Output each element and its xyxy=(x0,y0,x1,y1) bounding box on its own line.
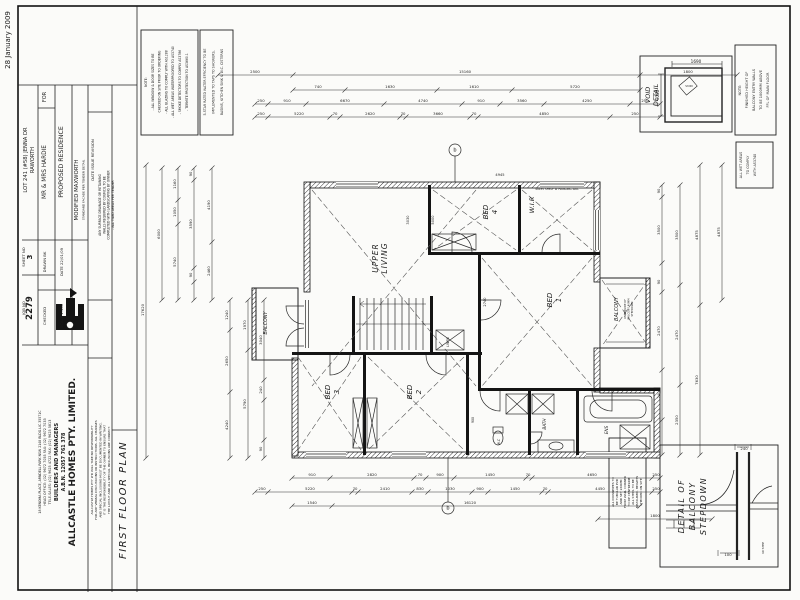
dim-chain: 19705790 xyxy=(242,298,250,461)
stepdown-dim-100: 100 xyxy=(724,552,732,557)
wet-area-note: ALL WET AREASTO COMPLYWITH AS3740 xyxy=(739,152,757,178)
svg-text:740: 740 xyxy=(314,84,322,89)
company-tel: TELE-SALES: (02) 9625 4722 FAX: (02) 962… xyxy=(48,420,52,506)
svg-text:90: 90 xyxy=(656,188,661,193)
svg-text:5720: 5720 xyxy=(570,84,580,89)
svg-text:2500: 2500 xyxy=(250,69,260,74)
svg-text:2620: 2620 xyxy=(365,111,375,116)
room-upper-living: UPPERLIVING xyxy=(371,242,389,273)
five-star-note: 5-STAR RATED WATER EFFICIENCY TO BEIMPLE… xyxy=(203,48,224,115)
room-wir: W.I.R xyxy=(528,197,536,213)
svg-text:4875: 4875 xyxy=(694,230,699,240)
svg-text:1450: 1450 xyxy=(485,472,495,477)
svg-text:5790: 5790 xyxy=(242,399,247,409)
inner-dim-4945: 4945 xyxy=(495,173,504,177)
company-address: 18 KENOMA PLACE, ARNDELL PARK NSW 2148 B… xyxy=(38,410,42,514)
svg-text:240: 240 xyxy=(258,386,263,394)
interior-walls xyxy=(292,185,660,455)
svg-text:3660: 3660 xyxy=(433,111,443,116)
svg-text:3500: 3500 xyxy=(674,230,679,240)
room-bed3: BED3 xyxy=(324,384,341,399)
svg-text:4875: 4875 xyxy=(716,227,721,237)
sheet-frame xyxy=(18,6,790,590)
svg-text:900: 900 xyxy=(436,472,444,477)
svg-text:250: 250 xyxy=(652,486,660,491)
svg-text:250: 250 xyxy=(257,111,265,116)
dim-chain: 2509106670474091035604250250 xyxy=(253,98,663,106)
svg-text:4850: 4850 xyxy=(539,111,549,116)
svg-text:70: 70 xyxy=(526,472,531,477)
svg-text:70: 70 xyxy=(353,486,358,491)
svg-text:2350: 2350 xyxy=(674,415,679,425)
stepdown-dim-240: 240 xyxy=(740,446,748,451)
dim-chain: 9102820709001450704650250 xyxy=(290,472,663,480)
svg-text:6670: 6670 xyxy=(340,98,350,103)
stairs xyxy=(356,298,430,350)
dim-chain: 154016120 xyxy=(290,500,643,508)
lot-block: LOT 241 (#58) JENNA DRRAWORTH xyxy=(23,127,36,193)
svg-text:240: 240 xyxy=(656,391,661,399)
void-tag: VOID xyxy=(685,84,693,88)
marker-bottom: b xyxy=(446,506,449,512)
svg-text:2470: 2470 xyxy=(656,326,661,336)
stepdown-dim-step: 40 STEP xyxy=(761,542,765,554)
room-bath: BATH xyxy=(542,418,547,430)
svg-text:5220: 5220 xyxy=(305,486,315,491)
svg-text:1630: 1630 xyxy=(385,84,395,89)
svg-text:4450: 4450 xyxy=(595,486,605,491)
fixtures xyxy=(353,234,652,452)
svg-text:2460: 2460 xyxy=(206,266,211,276)
svg-text:1450: 1450 xyxy=(510,486,520,491)
svg-text:1800: 1800 xyxy=(650,513,660,518)
side-date: 28 January 2009 xyxy=(4,11,12,69)
checked: CHECKED xyxy=(42,307,47,325)
dim-chain: 6000 xyxy=(156,166,164,303)
balcony-wall-note: NOTE:FINISHED HEIGHT OFBALCONY ENTRY WAL… xyxy=(738,68,770,111)
downpipe-steel-note: ALL DOWNPIPES TOBE TUBULAR PVDAND SET 24… xyxy=(611,476,643,508)
inner-dim-2740: 2740 xyxy=(483,297,487,307)
svg-text:2410: 2410 xyxy=(380,486,390,491)
svg-text:910: 910 xyxy=(308,472,316,477)
dim-chain: 2505220702620703660704850250 xyxy=(253,111,663,119)
revision-header: DATE ISSUE REVISION xyxy=(90,139,95,181)
svg-text:250: 250 xyxy=(257,98,265,103)
svg-text:17620: 17620 xyxy=(140,303,145,316)
room-balcony-right: BALCONY xyxy=(614,296,620,321)
svg-text:250: 250 xyxy=(652,472,660,477)
svg-text:4650: 4650 xyxy=(587,472,597,477)
disclaimer: ALLCASTLE HOMES PTY LTD WILL TAKE NO RES… xyxy=(90,420,111,520)
svg-text:16120: 16120 xyxy=(464,500,477,505)
shelf-note: 40x35 SHELF W HANGING RAIL xyxy=(535,187,579,191)
svg-text:70: 70 xyxy=(472,111,477,116)
room-bed2: BED2 xyxy=(406,384,423,399)
scale: SCALE 1:100 xyxy=(59,303,64,328)
svg-text:90: 90 xyxy=(188,272,193,277)
svg-text:2470: 2470 xyxy=(674,330,679,340)
svg-text:1240: 1240 xyxy=(224,310,229,320)
dim-chain: 4875 xyxy=(716,163,724,303)
svg-text:4740: 4740 xyxy=(418,98,428,103)
dim-chain: 350024702350 xyxy=(674,183,682,458)
svg-text:2650: 2650 xyxy=(224,356,229,366)
balconies xyxy=(252,278,650,360)
svg-text:900: 900 xyxy=(476,486,484,491)
svg-text:90: 90 xyxy=(188,171,193,176)
marker-top: b xyxy=(453,148,456,154)
company-abn: A.B.N. 12057 761 378 xyxy=(61,432,67,491)
svg-text:4240: 4240 xyxy=(224,420,229,430)
svg-text:830: 830 xyxy=(416,486,424,491)
balcony-right-note: UNDERSIDE OFBALCONY 40MMSTEPDOWN xyxy=(623,299,634,320)
void-dim-side: 1000 xyxy=(655,89,660,100)
svg-text:5220: 5220 xyxy=(294,111,304,116)
model: MODIFIED MAXWORTH xyxy=(74,160,80,221)
inner-dim-900: 900 xyxy=(471,417,475,423)
svg-text:6000: 6000 xyxy=(156,229,161,239)
svg-text:250: 250 xyxy=(258,486,266,491)
svg-text:1160: 1160 xyxy=(172,179,177,189)
svg-text:3590: 3590 xyxy=(188,219,193,229)
drawing-sheet: { "title_block": { "plan_title": "FIRST … xyxy=(0,0,800,600)
svg-text:1030: 1030 xyxy=(445,486,455,491)
drawn: DRAWN BK xyxy=(42,251,47,272)
svg-text:1050: 1050 xyxy=(172,207,177,217)
dim-chain: 116010505740 xyxy=(172,166,180,303)
dim-chain: 41902460 xyxy=(206,166,214,303)
inner-dim-5000: 5000 xyxy=(431,215,435,225)
dim-chain: 124026504240 xyxy=(224,298,232,461)
exterior-walls xyxy=(292,182,660,458)
company-head: HEAD OFFICE: (02) 9672 7055 FAX: (02) 96… xyxy=(43,418,47,505)
stepdown-detail-label: DETAIL OFBALCONYSTEPDOWN xyxy=(677,477,708,535)
svg-text:1800: 1800 xyxy=(683,69,693,74)
model-sub: STANDARD FACADE PER TENDER DETAIL xyxy=(82,159,86,220)
dim-chain: 740163016105720 xyxy=(291,84,643,92)
note-boxes xyxy=(141,30,776,548)
room-bed4: BED4 xyxy=(482,204,499,219)
job-no: 2279 xyxy=(25,296,35,320)
dim-chain: 90359090 xyxy=(188,166,196,303)
void-dim-top: 1690 xyxy=(691,59,702,64)
svg-text:1540: 1540 xyxy=(307,500,317,505)
svg-text:7630: 7630 xyxy=(694,375,699,385)
svg-text:70: 70 xyxy=(418,472,423,477)
svg-text:250: 250 xyxy=(631,111,639,116)
inner-dim-3030: 3030 xyxy=(406,215,410,225)
svg-text:90: 90 xyxy=(656,279,661,284)
for-label: FOR xyxy=(42,91,48,102)
room-ens: ENS xyxy=(604,425,609,434)
company-role: BUILDERS AND MANAGERS xyxy=(54,423,60,502)
svg-text:70: 70 xyxy=(543,486,548,491)
svg-text:3500: 3500 xyxy=(656,225,661,235)
svg-text:70: 70 xyxy=(333,111,338,116)
svg-text:4190: 4190 xyxy=(206,200,211,210)
svg-text:5740: 5740 xyxy=(172,257,177,267)
svg-text:3040: 3040 xyxy=(258,335,263,345)
plan-title: FIRST FLOOR PLAN xyxy=(118,441,129,559)
room-wc: W.C xyxy=(497,438,501,445)
company-name: ALLCASTLE HOMES PTY. LIMITED. xyxy=(68,378,78,546)
dim-chain: 250522070241083010309001450704450250 xyxy=(253,486,663,494)
dim-chain: 48757630 xyxy=(694,163,702,458)
svg-text:15160: 15160 xyxy=(459,69,472,74)
svg-text:2820: 2820 xyxy=(367,472,377,477)
section-markers xyxy=(442,144,461,514)
svg-text:910: 910 xyxy=(477,98,485,103)
svg-text:90: 90 xyxy=(258,446,263,451)
sheet-no: 3 xyxy=(26,254,34,259)
svg-text:3560: 3560 xyxy=(517,98,527,103)
svg-text:4250: 4250 xyxy=(582,98,592,103)
client: MR & MRS HARDIE xyxy=(42,145,48,199)
svg-text:70: 70 xyxy=(401,111,406,116)
general-notes: NOTE:- ALL WINDOW & DOOR SIZES TO BE CHE… xyxy=(144,46,189,118)
room-linen: LINEN xyxy=(446,337,450,347)
project: PROPOSED RESIDENCE xyxy=(58,126,65,198)
date: DATE 22/01/09 xyxy=(59,247,64,276)
dim-chain: 17620 xyxy=(140,163,148,461)
svg-text:1970: 1970 xyxy=(242,320,247,330)
svg-text:910: 910 xyxy=(283,98,291,103)
floor-plan-canvas: 2500151601800740163016105720250910667047… xyxy=(0,0,800,600)
room-balcony-left: BALCONY xyxy=(263,310,269,334)
svg-text:1610: 1610 xyxy=(469,84,479,89)
